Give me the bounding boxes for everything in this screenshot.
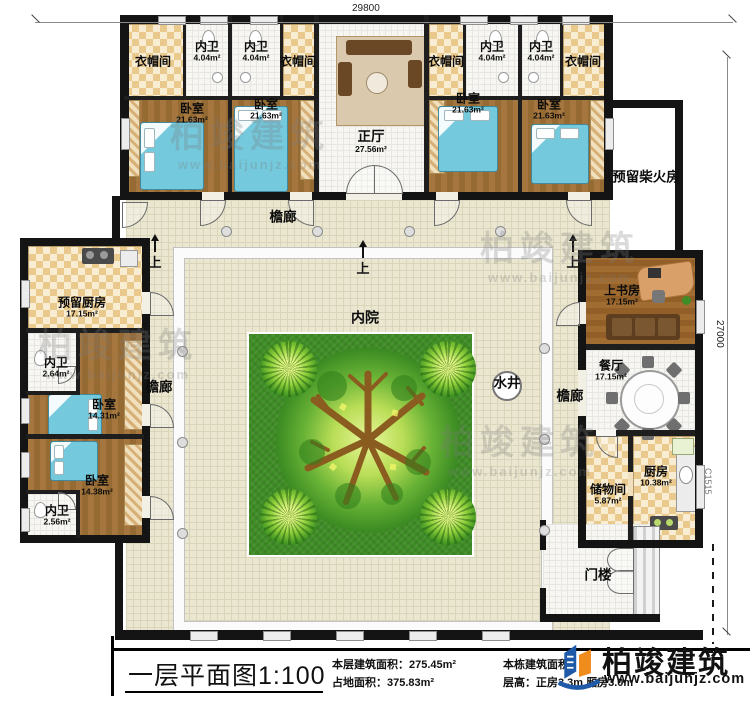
room-name: 卧室 bbox=[180, 102, 204, 116]
room-area: 27.56m² bbox=[355, 145, 387, 154]
wall bbox=[578, 540, 703, 548]
pillow bbox=[54, 461, 64, 475]
room-label-bath: 内卫4.04m² bbox=[243, 41, 270, 64]
wall bbox=[424, 15, 429, 192]
wall bbox=[26, 490, 80, 494]
room-area: 17.15m² bbox=[58, 310, 106, 319]
door-gap bbox=[142, 496, 150, 518]
kitchen-sink bbox=[679, 466, 693, 484]
window bbox=[21, 398, 30, 424]
window bbox=[562, 16, 590, 25]
wall bbox=[20, 238, 150, 246]
wall bbox=[586, 344, 695, 350]
wall bbox=[613, 100, 683, 108]
chair bbox=[606, 392, 618, 404]
room-label-bedroom: 卧室21.63m² bbox=[452, 93, 484, 116]
room-area: 14.38m² bbox=[81, 488, 113, 497]
wall bbox=[183, 15, 186, 98]
room-name: 预留厨房 bbox=[58, 296, 106, 310]
wall bbox=[518, 15, 522, 192]
room-area: 21.63m² bbox=[176, 116, 208, 125]
column bbox=[539, 434, 550, 445]
column bbox=[177, 437, 188, 448]
room-label-closet: 衣帽间 bbox=[280, 55, 316, 68]
boundary-dashed-line bbox=[712, 544, 714, 644]
room-area: 2.64m² bbox=[43, 370, 70, 379]
room-name: 衣帽间 bbox=[565, 54, 601, 68]
up-arrow-tail bbox=[362, 247, 364, 258]
column bbox=[312, 226, 323, 237]
courtyard-label: 内院 bbox=[351, 310, 379, 325]
stairs-up-mark: 上 bbox=[562, 234, 584, 272]
up-arrow-icon bbox=[151, 234, 159, 241]
window bbox=[200, 16, 228, 25]
plan-title: 一层平面图1:100 bbox=[128, 656, 326, 692]
well-label: 水井 bbox=[494, 377, 521, 392]
room-label-gatehouse: 门楼 bbox=[585, 569, 612, 584]
wall bbox=[26, 434, 144, 439]
corridor-label: 檐廊 bbox=[270, 211, 297, 226]
door-gap bbox=[290, 192, 312, 200]
computer bbox=[648, 268, 661, 278]
room-area: 17.15m² bbox=[604, 298, 640, 307]
garden-bush bbox=[420, 489, 476, 545]
corridor-label: 檐廊 bbox=[557, 390, 584, 405]
sofa-cushion bbox=[658, 318, 676, 336]
room-name: 衣帽间 bbox=[428, 54, 464, 68]
room-name: 内卫 bbox=[480, 40, 504, 54]
room-area: 21.63m² bbox=[250, 112, 282, 121]
wardrobe bbox=[124, 340, 143, 430]
room-area: 5.87m² bbox=[590, 497, 626, 506]
room-label-bath: 内卫4.04m² bbox=[194, 41, 221, 64]
window bbox=[409, 631, 437, 641]
garden-bush bbox=[261, 489, 317, 545]
up-arrow-icon bbox=[359, 240, 367, 247]
door-gap bbox=[142, 292, 150, 314]
chair bbox=[642, 356, 654, 368]
sink bbox=[498, 72, 509, 83]
room-name: 内卫 bbox=[44, 356, 68, 370]
window bbox=[460, 16, 488, 25]
window bbox=[482, 631, 510, 641]
room-label-bedroom: 卧室21.63m² bbox=[533, 99, 565, 122]
column bbox=[177, 528, 188, 539]
room-label-kitchen: 厨房10.38m² bbox=[640, 466, 672, 489]
room-name: 厨房 bbox=[644, 465, 668, 479]
wall bbox=[578, 250, 703, 258]
window bbox=[605, 118, 614, 150]
hall-table bbox=[366, 72, 388, 94]
room-area: 4.04m² bbox=[528, 54, 555, 63]
room-name: 正厅 bbox=[357, 129, 384, 144]
up-label: 上 bbox=[566, 255, 579, 270]
column bbox=[221, 226, 232, 237]
wall bbox=[26, 391, 80, 395]
fridge bbox=[672, 438, 694, 455]
up-arrow-tail bbox=[572, 241, 574, 252]
room-name: 衣帽间 bbox=[135, 54, 171, 68]
room-area: 10.38m² bbox=[640, 479, 672, 488]
burner bbox=[654, 519, 661, 526]
column bbox=[177, 346, 188, 357]
room-label-bath: 内卫4.04m² bbox=[479, 41, 506, 64]
hall-armchair bbox=[408, 60, 422, 88]
wall bbox=[76, 490, 80, 538]
wall bbox=[560, 15, 563, 98]
room-name: 内卫 bbox=[529, 40, 553, 54]
room-label-bath: 内卫2.56m² bbox=[44, 505, 71, 528]
brand-logo-icon bbox=[556, 636, 602, 694]
hall-sofa bbox=[346, 40, 412, 55]
sofa-cushion bbox=[635, 318, 655, 336]
room-label-bath: 内卫2.64m² bbox=[43, 357, 70, 380]
door-gap bbox=[202, 192, 224, 200]
window bbox=[21, 280, 30, 308]
column bbox=[404, 226, 415, 237]
wall bbox=[228, 15, 232, 192]
title-underline bbox=[125, 691, 323, 693]
column bbox=[539, 343, 550, 354]
room-area: 4.04m² bbox=[479, 54, 506, 63]
window bbox=[250, 16, 278, 25]
plant bbox=[682, 296, 691, 305]
hall-armchair bbox=[338, 62, 352, 96]
floorplan-page: { "dims": { "top": "29800", "right": "27… bbox=[0, 0, 750, 707]
room-area: 17.15m² bbox=[595, 373, 627, 382]
room-area: 21.63m² bbox=[533, 112, 565, 121]
desk-chair bbox=[652, 290, 665, 303]
sofa-cushion bbox=[612, 318, 632, 336]
sink bbox=[212, 72, 223, 83]
corridor-name: 檐廊 bbox=[270, 210, 297, 225]
wall bbox=[76, 333, 80, 395]
room-area: 4.04m² bbox=[243, 54, 270, 63]
corridor-name: 檐廊 bbox=[146, 380, 173, 395]
room-label-closet: 衣帽间 bbox=[428, 55, 464, 68]
room-label-study: 上书房17.15m² bbox=[604, 285, 640, 308]
stat-label: 层高： bbox=[503, 677, 536, 689]
door-gap bbox=[436, 192, 458, 200]
window bbox=[190, 631, 218, 641]
room-area: 2.56m² bbox=[44, 518, 71, 527]
stat-site-area: 占地面积：375.83m² bbox=[332, 674, 434, 690]
wardrobe bbox=[124, 444, 143, 526]
room-label-storage: 储物间5.87m² bbox=[590, 484, 626, 507]
wall bbox=[26, 328, 144, 333]
brand-url: www.baijunjz.com bbox=[604, 671, 745, 687]
dimension-right-value: 27000 bbox=[714, 320, 725, 348]
room-name: 内卫 bbox=[195, 40, 219, 54]
stat-floor-area: 本层建筑面积：275.45m² bbox=[332, 656, 456, 672]
room-name: 预留柴火房 bbox=[612, 170, 680, 185]
sink bbox=[528, 72, 539, 83]
room-area: 4.04m² bbox=[194, 54, 221, 63]
corridor-name: 檐廊 bbox=[557, 389, 584, 404]
room-label-bedroom: 卧室21.63m² bbox=[176, 103, 208, 126]
wall bbox=[20, 535, 150, 543]
burner bbox=[100, 251, 108, 259]
wall bbox=[120, 15, 129, 200]
room-name: 卧室 bbox=[92, 398, 116, 412]
column bbox=[495, 226, 506, 237]
room-name: 上书房 bbox=[604, 284, 640, 298]
pillow bbox=[144, 152, 155, 172]
room-name: 卧室 bbox=[85, 474, 109, 488]
garden-bush bbox=[261, 341, 317, 397]
up-arrow-tail bbox=[154, 241, 156, 252]
room-label-bedroom: 卧室14.31m² bbox=[88, 399, 120, 422]
burner bbox=[666, 519, 673, 526]
window-tag: C1515 bbox=[703, 468, 713, 495]
pillow bbox=[54, 445, 64, 459]
door-gap bbox=[568, 192, 590, 200]
window bbox=[21, 508, 30, 532]
wall bbox=[314, 15, 319, 192]
pillow bbox=[144, 128, 155, 148]
room-label-dining: 餐厅17.15m² bbox=[595, 360, 627, 383]
room-name: 餐厅 bbox=[599, 359, 623, 373]
window bbox=[121, 118, 130, 150]
stat-label: 占地面积： bbox=[332, 677, 387, 689]
door-gap bbox=[628, 472, 633, 496]
up-label: 上 bbox=[356, 261, 369, 276]
chair bbox=[678, 392, 690, 404]
room-area: 21.63m² bbox=[452, 106, 484, 115]
room-label-main-hall: 正厅27.56m² bbox=[355, 130, 387, 154]
fridge bbox=[120, 250, 138, 267]
dimension-line-right bbox=[727, 57, 728, 635]
room-label-firewood: 预留柴火房 bbox=[612, 171, 680, 186]
stairs-up-mark: 上 bbox=[352, 240, 374, 278]
titleblock-rule bbox=[111, 636, 114, 696]
room-name: 内卫 bbox=[45, 504, 69, 518]
room-name: 卧室 bbox=[254, 98, 278, 112]
wall bbox=[115, 543, 123, 640]
dimension-line-top bbox=[35, 22, 733, 23]
room-label-bedroom: 卧室14.38m² bbox=[81, 475, 113, 498]
room-area: 14.31m² bbox=[88, 412, 120, 421]
room-name: 卧室 bbox=[537, 98, 561, 112]
pillow bbox=[560, 128, 579, 139]
corridor-label: 檐廊 bbox=[146, 381, 173, 396]
room-name: 内卫 bbox=[244, 40, 268, 54]
room-name: 衣帽间 bbox=[280, 54, 316, 68]
sink bbox=[240, 72, 251, 83]
door-gap bbox=[142, 404, 150, 426]
room-label-bedroom: 卧室21.63m² bbox=[250, 99, 282, 122]
up-label: 上 bbox=[148, 255, 161, 270]
window bbox=[696, 300, 705, 334]
dimension-top-value: 29800 bbox=[352, 3, 380, 14]
window bbox=[336, 631, 364, 641]
window bbox=[510, 16, 538, 25]
window bbox=[263, 631, 291, 641]
wall bbox=[540, 614, 660, 622]
stat-label: 本层建筑面积： bbox=[332, 659, 409, 671]
stat-value: 375.83m² bbox=[387, 677, 434, 689]
room-label-closet: 衣帽间 bbox=[565, 55, 601, 68]
window bbox=[21, 452, 30, 478]
room-name: 储物间 bbox=[590, 483, 626, 497]
room-label-closet: 衣帽间 bbox=[135, 55, 171, 68]
window bbox=[158, 16, 186, 25]
garden-bush bbox=[420, 341, 476, 397]
room-label-reserved-kitchen: 预留厨房17.15m² bbox=[58, 297, 106, 320]
room-label-bath: 内卫4.04m² bbox=[528, 41, 555, 64]
burner bbox=[86, 251, 94, 259]
up-arrow-icon bbox=[569, 234, 577, 241]
room-name: 卧室 bbox=[456, 92, 480, 106]
wall bbox=[124, 96, 228, 100]
column bbox=[539, 525, 550, 536]
stairs-up-mark: 上 bbox=[144, 234, 166, 272]
room-name: 门楼 bbox=[585, 568, 612, 583]
pillow bbox=[536, 128, 555, 139]
stat-value: 275.45m² bbox=[409, 659, 456, 671]
dining-table-inner bbox=[634, 384, 664, 414]
courtyard-name: 内院 bbox=[351, 309, 379, 325]
